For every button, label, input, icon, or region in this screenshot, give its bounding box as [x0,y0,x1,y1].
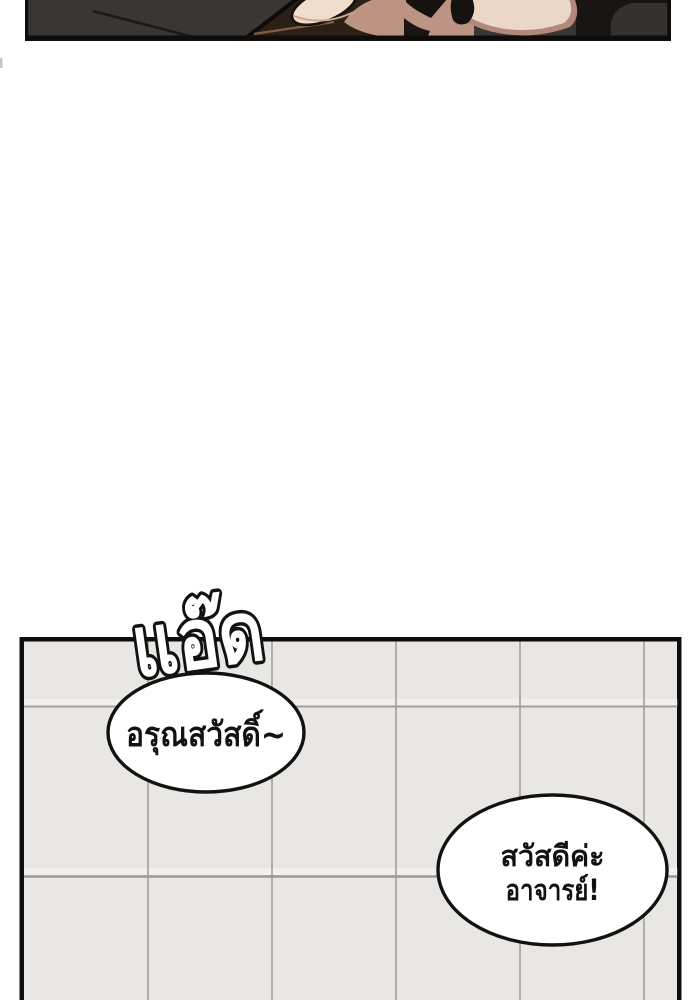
edge-artifact [0,58,3,68]
speech-bubble-2-text-line1: สวัสดีค่ะ [501,839,605,873]
comic-artwork: แอ๊ด อรุณสวัสดิ์~ สวัสดีค่ะ อาจารย์! [0,0,700,1000]
panel-top-border-bottom [25,36,671,42]
speech-bubble-2-text-line2: อาจารย์! [506,873,600,907]
speech-bubble-1: อรุณสวัสดิ์~ [108,673,304,792]
panel-top [25,0,671,41]
speech-bubble-1-text: อรุณสวัสดิ์~ [126,709,286,756]
panel-top-border-right [667,0,671,41]
panel-top-border-left [25,0,28,41]
comic-page: แอ๊ด อรุณสวัสดิ์~ สวัสดีค่ะ อาจารย์! [0,0,700,1000]
speech-bubble-2: สวัสดีค่ะ อาจารย์! [438,795,667,945]
